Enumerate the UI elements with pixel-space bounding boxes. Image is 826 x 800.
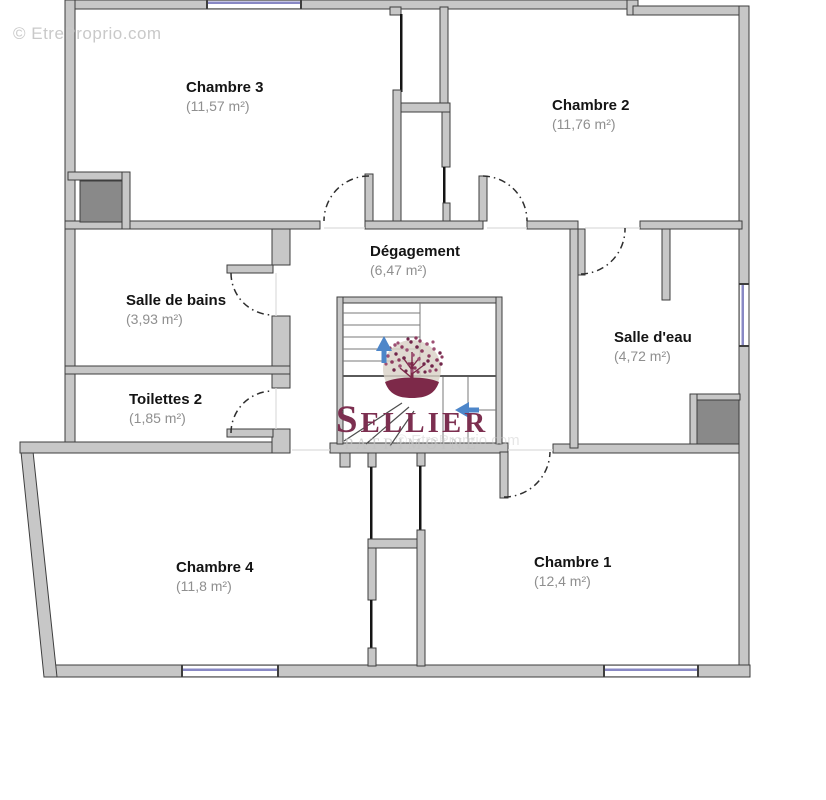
room-name: Salle d'eau	[614, 328, 692, 347]
room-label-degagement: Dégagement (6,47 m²)	[370, 242, 460, 280]
agency-logo	[383, 336, 444, 398]
room-name: Chambre 4	[176, 558, 254, 577]
room-label-chambre-4: Chambre 4 (11,8 m²)	[176, 558, 254, 596]
room-label-toilettes-2: Toilettes 2 (1,85 m²)	[129, 390, 202, 428]
room-name: Chambre 3	[186, 78, 264, 97]
room-area: (11,57 m²)	[186, 97, 264, 116]
room-area: (1,85 m²)	[129, 409, 202, 428]
room-label-chambre-3: Chambre 3 (11,57 m²)	[186, 78, 264, 116]
room-area: (12,4 m²)	[534, 572, 612, 591]
room-label-salle-de-bains: Salle de bains (3,93 m²)	[126, 291, 226, 329]
room-area: (3,93 m²)	[126, 310, 226, 329]
room-name: Chambre 2	[552, 96, 630, 115]
room-label-salle-d-eau: Salle d'eau (4,72 m²)	[614, 328, 692, 366]
room-area: (6,47 m²)	[370, 261, 460, 280]
room-area: (11,8 m²)	[176, 577, 254, 596]
room-name: Chambre 1	[534, 553, 612, 572]
room-area: (4,72 m²)	[614, 347, 692, 366]
room-name: Salle de bains	[126, 291, 226, 310]
floor-plan-canvas: © EtreProprio.com © EtreProprio.com Sell…	[0, 0, 826, 800]
agency-brand-name: Sellier	[322, 403, 502, 440]
room-name: Toilettes 2	[129, 390, 202, 409]
agency-tagline: Patrimoine	[322, 436, 502, 454]
floor-plan-drawing	[0, 0, 826, 800]
room-label-chambre-2: Chambre 2 (11,76 m²)	[552, 96, 630, 134]
room-name: Dégagement	[370, 242, 460, 261]
room-area: (11,76 m²)	[552, 115, 630, 134]
watermark-text: © EtreProprio.com	[13, 24, 162, 44]
room-label-chambre-1: Chambre 1 (12,4 m²)	[534, 553, 612, 591]
